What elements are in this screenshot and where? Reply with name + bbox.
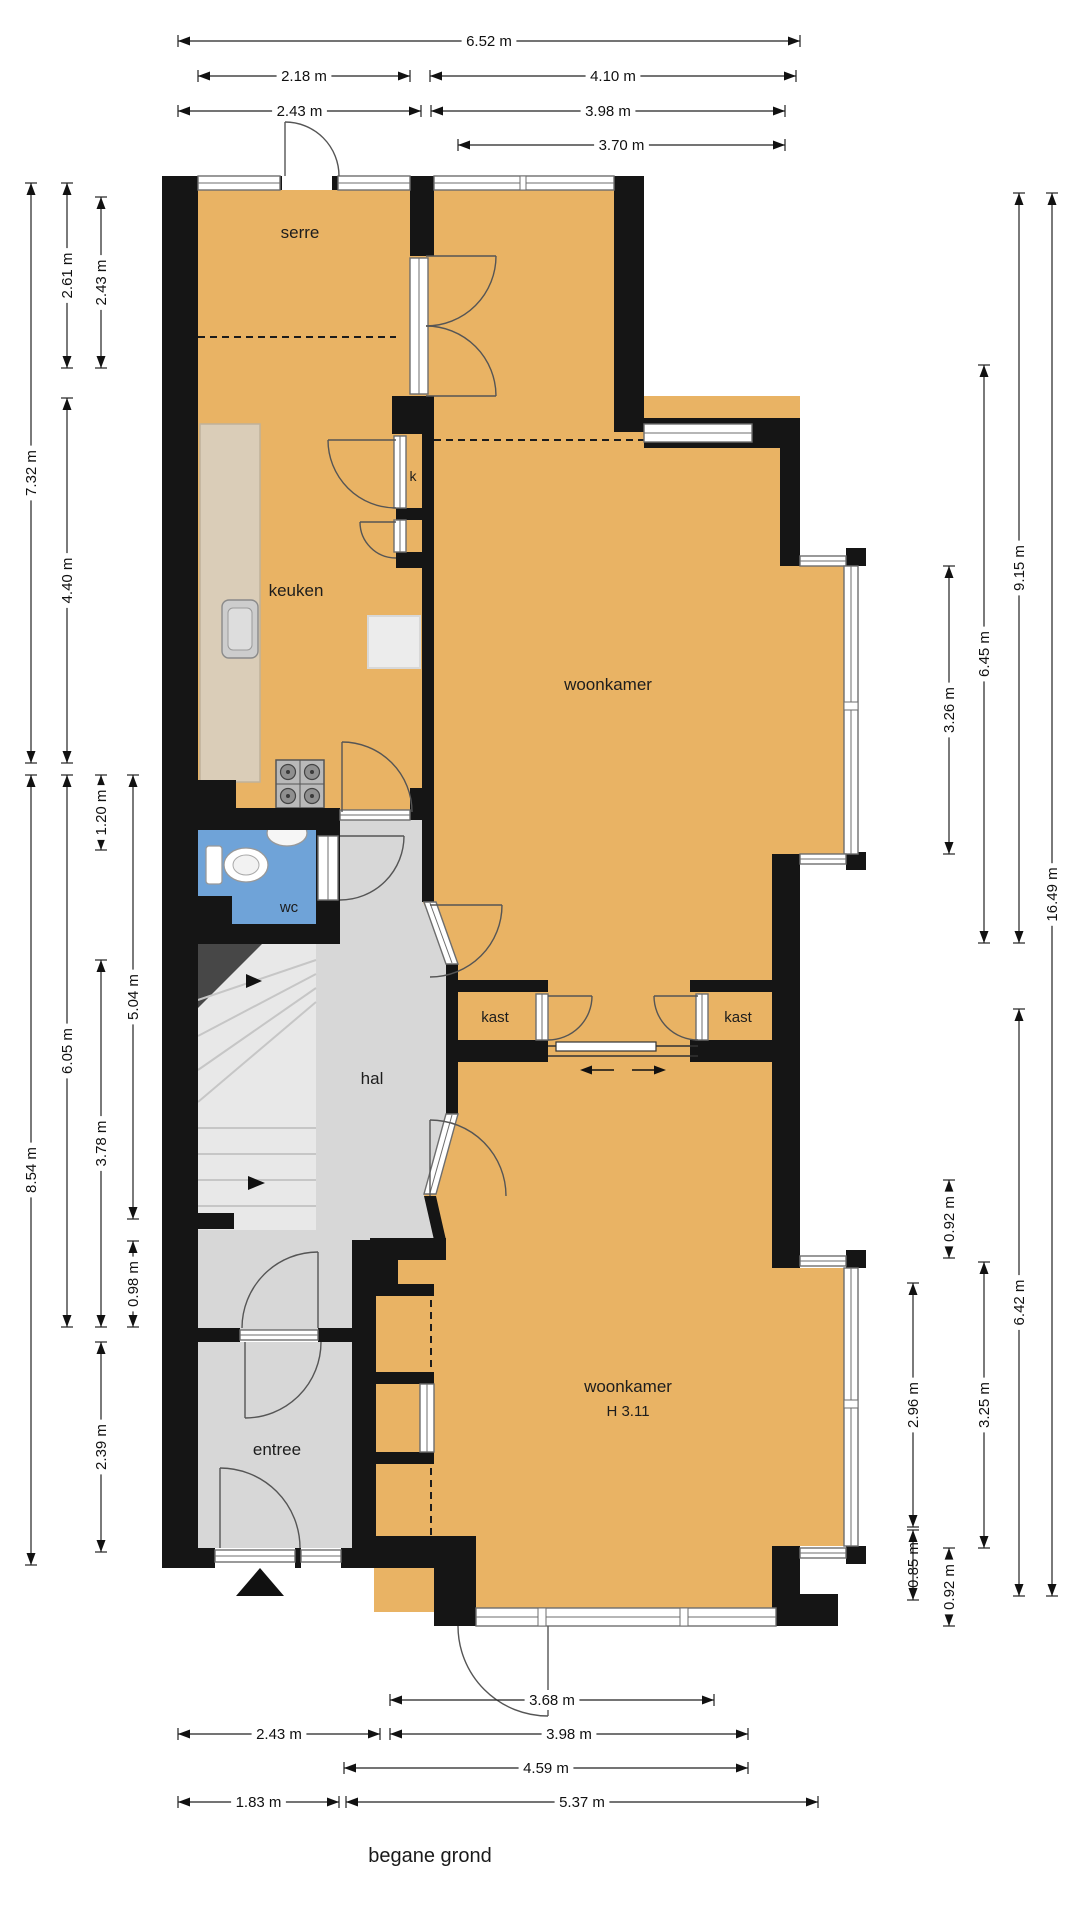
svg-text:16.49 m: 16.49 m bbox=[1044, 867, 1061, 921]
room-label-serre: serre bbox=[281, 223, 320, 242]
dim-1.20m: 1.20 m bbox=[91, 775, 111, 850]
room-label-woonkamer-2: woonkamer bbox=[583, 1377, 672, 1396]
dim-1.83m: 1.83 m bbox=[178, 1792, 339, 1812]
room-label-woonkamer: woonkamer bbox=[563, 675, 652, 694]
floorplan-drawing: serrekkeukenwoonkamerwckastkasthalwoonka… bbox=[0, 0, 1080, 1920]
room-label-kast-right: kast bbox=[724, 1009, 752, 1026]
room-label-closet-k: k bbox=[410, 468, 418, 484]
dim-16.49m: 16.49 m bbox=[1042, 193, 1062, 1596]
room-label-wc: wc bbox=[279, 899, 299, 916]
svg-text:3.68 m: 3.68 m bbox=[529, 1692, 575, 1709]
svg-text:0.92 m: 0.92 m bbox=[941, 1196, 958, 1242]
kitchen-sink-basin bbox=[228, 608, 252, 650]
dim-2.39m: 2.39 m bbox=[91, 1342, 111, 1552]
svg-text:2.61 m: 2.61 m bbox=[59, 253, 76, 299]
door-serre-exterior bbox=[285, 122, 339, 176]
svg-text:3.26 m: 3.26 m bbox=[941, 687, 958, 733]
dim-0.92m: 0.92 m bbox=[939, 1548, 959, 1626]
svg-text:4.10 m: 4.10 m bbox=[590, 68, 636, 85]
svg-text:0.85 m: 0.85 m bbox=[905, 1542, 922, 1588]
floorplan-page: serrekkeukenwoonkamerwckastkasthalwoonka… bbox=[0, 0, 1080, 1920]
dim-0.98m: 0.98 m bbox=[123, 1241, 143, 1327]
svg-text:8.54 m: 8.54 m bbox=[23, 1147, 40, 1193]
window-niche bbox=[420, 1384, 434, 1452]
door-band-keuken-hal bbox=[340, 810, 410, 820]
dim-6.05m: 6.05 m bbox=[57, 775, 77, 1327]
window-woonkamer-front bbox=[434, 176, 614, 190]
dim-2.61m: 2.61 m bbox=[57, 183, 77, 368]
dim-3.98m: 3.98 m bbox=[431, 101, 785, 121]
dim-6.42m: 6.42 m bbox=[1009, 1009, 1029, 1596]
svg-text:6.05 m: 6.05 m bbox=[59, 1028, 76, 1074]
svg-text:0.92 m: 0.92 m bbox=[941, 1564, 958, 1610]
window-closet-k-1 bbox=[394, 436, 406, 508]
dim-3.70m: 3.70 m bbox=[458, 135, 785, 155]
dim-7.32m: 7.32 m bbox=[21, 183, 41, 763]
svg-text:0.98 m: 0.98 m bbox=[125, 1261, 142, 1307]
window-serre-woonkamer-doors bbox=[410, 258, 428, 394]
dim-8.54m: 8.54 m bbox=[21, 775, 41, 1565]
svg-text:6.52 m: 6.52 m bbox=[466, 33, 512, 50]
room-label-keuken: keuken bbox=[269, 581, 324, 600]
svg-text:3.78 m: 3.78 m bbox=[93, 1121, 110, 1167]
staircase bbox=[198, 942, 316, 1230]
svg-text:6.42 m: 6.42 m bbox=[1011, 1280, 1028, 1326]
dim-3.25m: 3.25 m bbox=[974, 1262, 994, 1548]
dim-2.43m: 2.43 m bbox=[91, 197, 111, 368]
dim-2.18m: 2.18 m bbox=[198, 66, 410, 86]
dim-2.43m: 2.43 m bbox=[178, 1724, 380, 1744]
floor-bay-window-top bbox=[780, 566, 846, 854]
svg-text:4.40 m: 4.40 m bbox=[59, 558, 76, 604]
dim-4.40m: 4.40 m bbox=[57, 398, 77, 763]
dim-3.26m: 3.26 m bbox=[939, 566, 959, 854]
room-label-hal: hal bbox=[361, 1069, 384, 1088]
dim-2.96m: 2.96 m bbox=[903, 1283, 923, 1527]
window-closet-k-2 bbox=[394, 520, 406, 552]
window-extension-step bbox=[644, 424, 752, 442]
dim-3.68m: 3.68 m bbox=[390, 1690, 714, 1710]
room-label-kast-left: kast bbox=[481, 1009, 509, 1026]
svg-text:5.37 m: 5.37 m bbox=[559, 1794, 605, 1811]
dim-5.37m: 5.37 m bbox=[346, 1792, 818, 1812]
svg-text:1.20 m: 1.20 m bbox=[93, 790, 110, 836]
door-band-wc bbox=[318, 836, 338, 900]
dim-3.78m: 3.78 m bbox=[91, 960, 111, 1327]
dim-5.04m: 5.04 m bbox=[123, 775, 143, 1219]
svg-text:7.32 m: 7.32 m bbox=[23, 450, 40, 496]
svg-text:3.70 m: 3.70 m bbox=[599, 137, 645, 154]
dim-6.45m: 6.45 m bbox=[974, 365, 994, 943]
svg-text:9.15 m: 9.15 m bbox=[1011, 545, 1028, 591]
svg-text:6.45 m: 6.45 m bbox=[976, 631, 993, 677]
dim-6.52m: 6.52 m bbox=[178, 31, 800, 51]
svg-text:2.96 m: 2.96 m bbox=[905, 1382, 922, 1428]
dim-4.59m: 4.59 m bbox=[344, 1758, 748, 1778]
dim-0.85m: 0.85 m bbox=[905, 1530, 922, 1600]
window-serre-front bbox=[198, 176, 410, 190]
wc-toilet bbox=[206, 846, 268, 884]
entrance-arrow-icon bbox=[236, 1568, 284, 1596]
dim-3.98m: 3.98 m bbox=[390, 1724, 748, 1744]
svg-text:3.25 m: 3.25 m bbox=[976, 1382, 993, 1428]
appliance-square bbox=[368, 616, 420, 668]
plan-title: begane grond bbox=[368, 1845, 491, 1867]
svg-text:2.43 m: 2.43 m bbox=[93, 260, 110, 306]
window-kast-right bbox=[696, 994, 708, 1040]
stove bbox=[276, 760, 324, 808]
dim-2.43m: 2.43 m bbox=[178, 101, 421, 121]
front-door-band bbox=[215, 1550, 341, 1562]
svg-text:3.98 m: 3.98 m bbox=[546, 1726, 592, 1743]
svg-text:1.83 m: 1.83 m bbox=[236, 1794, 282, 1811]
svg-text:4.59 m: 4.59 m bbox=[523, 1760, 569, 1777]
svg-text:2.43 m: 2.43 m bbox=[256, 1726, 302, 1743]
svg-text:2.43 m: 2.43 m bbox=[277, 103, 323, 120]
window-kast-left bbox=[536, 994, 548, 1040]
floor-woonkamer bbox=[434, 396, 800, 1052]
room-label-entree: entree bbox=[253, 1440, 301, 1459]
room-label-woonkamer-2-height: H 3.11 bbox=[606, 1403, 649, 1420]
svg-text:5.04 m: 5.04 m bbox=[125, 974, 142, 1020]
window-woonkamer2-rear bbox=[476, 1608, 776, 1626]
svg-text:2.39 m: 2.39 m bbox=[93, 1424, 110, 1470]
svg-text:2.18 m: 2.18 m bbox=[281, 68, 327, 85]
svg-text:3.98 m: 3.98 m bbox=[585, 103, 631, 120]
dim-0.92m: 0.92 m bbox=[939, 1180, 959, 1258]
floor-bay-window-bottom bbox=[780, 1268, 846, 1546]
dim-9.15m: 9.15 m bbox=[1009, 193, 1029, 943]
dim-4.10m: 4.10 m bbox=[430, 66, 796, 86]
door-band-hal-entree bbox=[240, 1330, 318, 1340]
